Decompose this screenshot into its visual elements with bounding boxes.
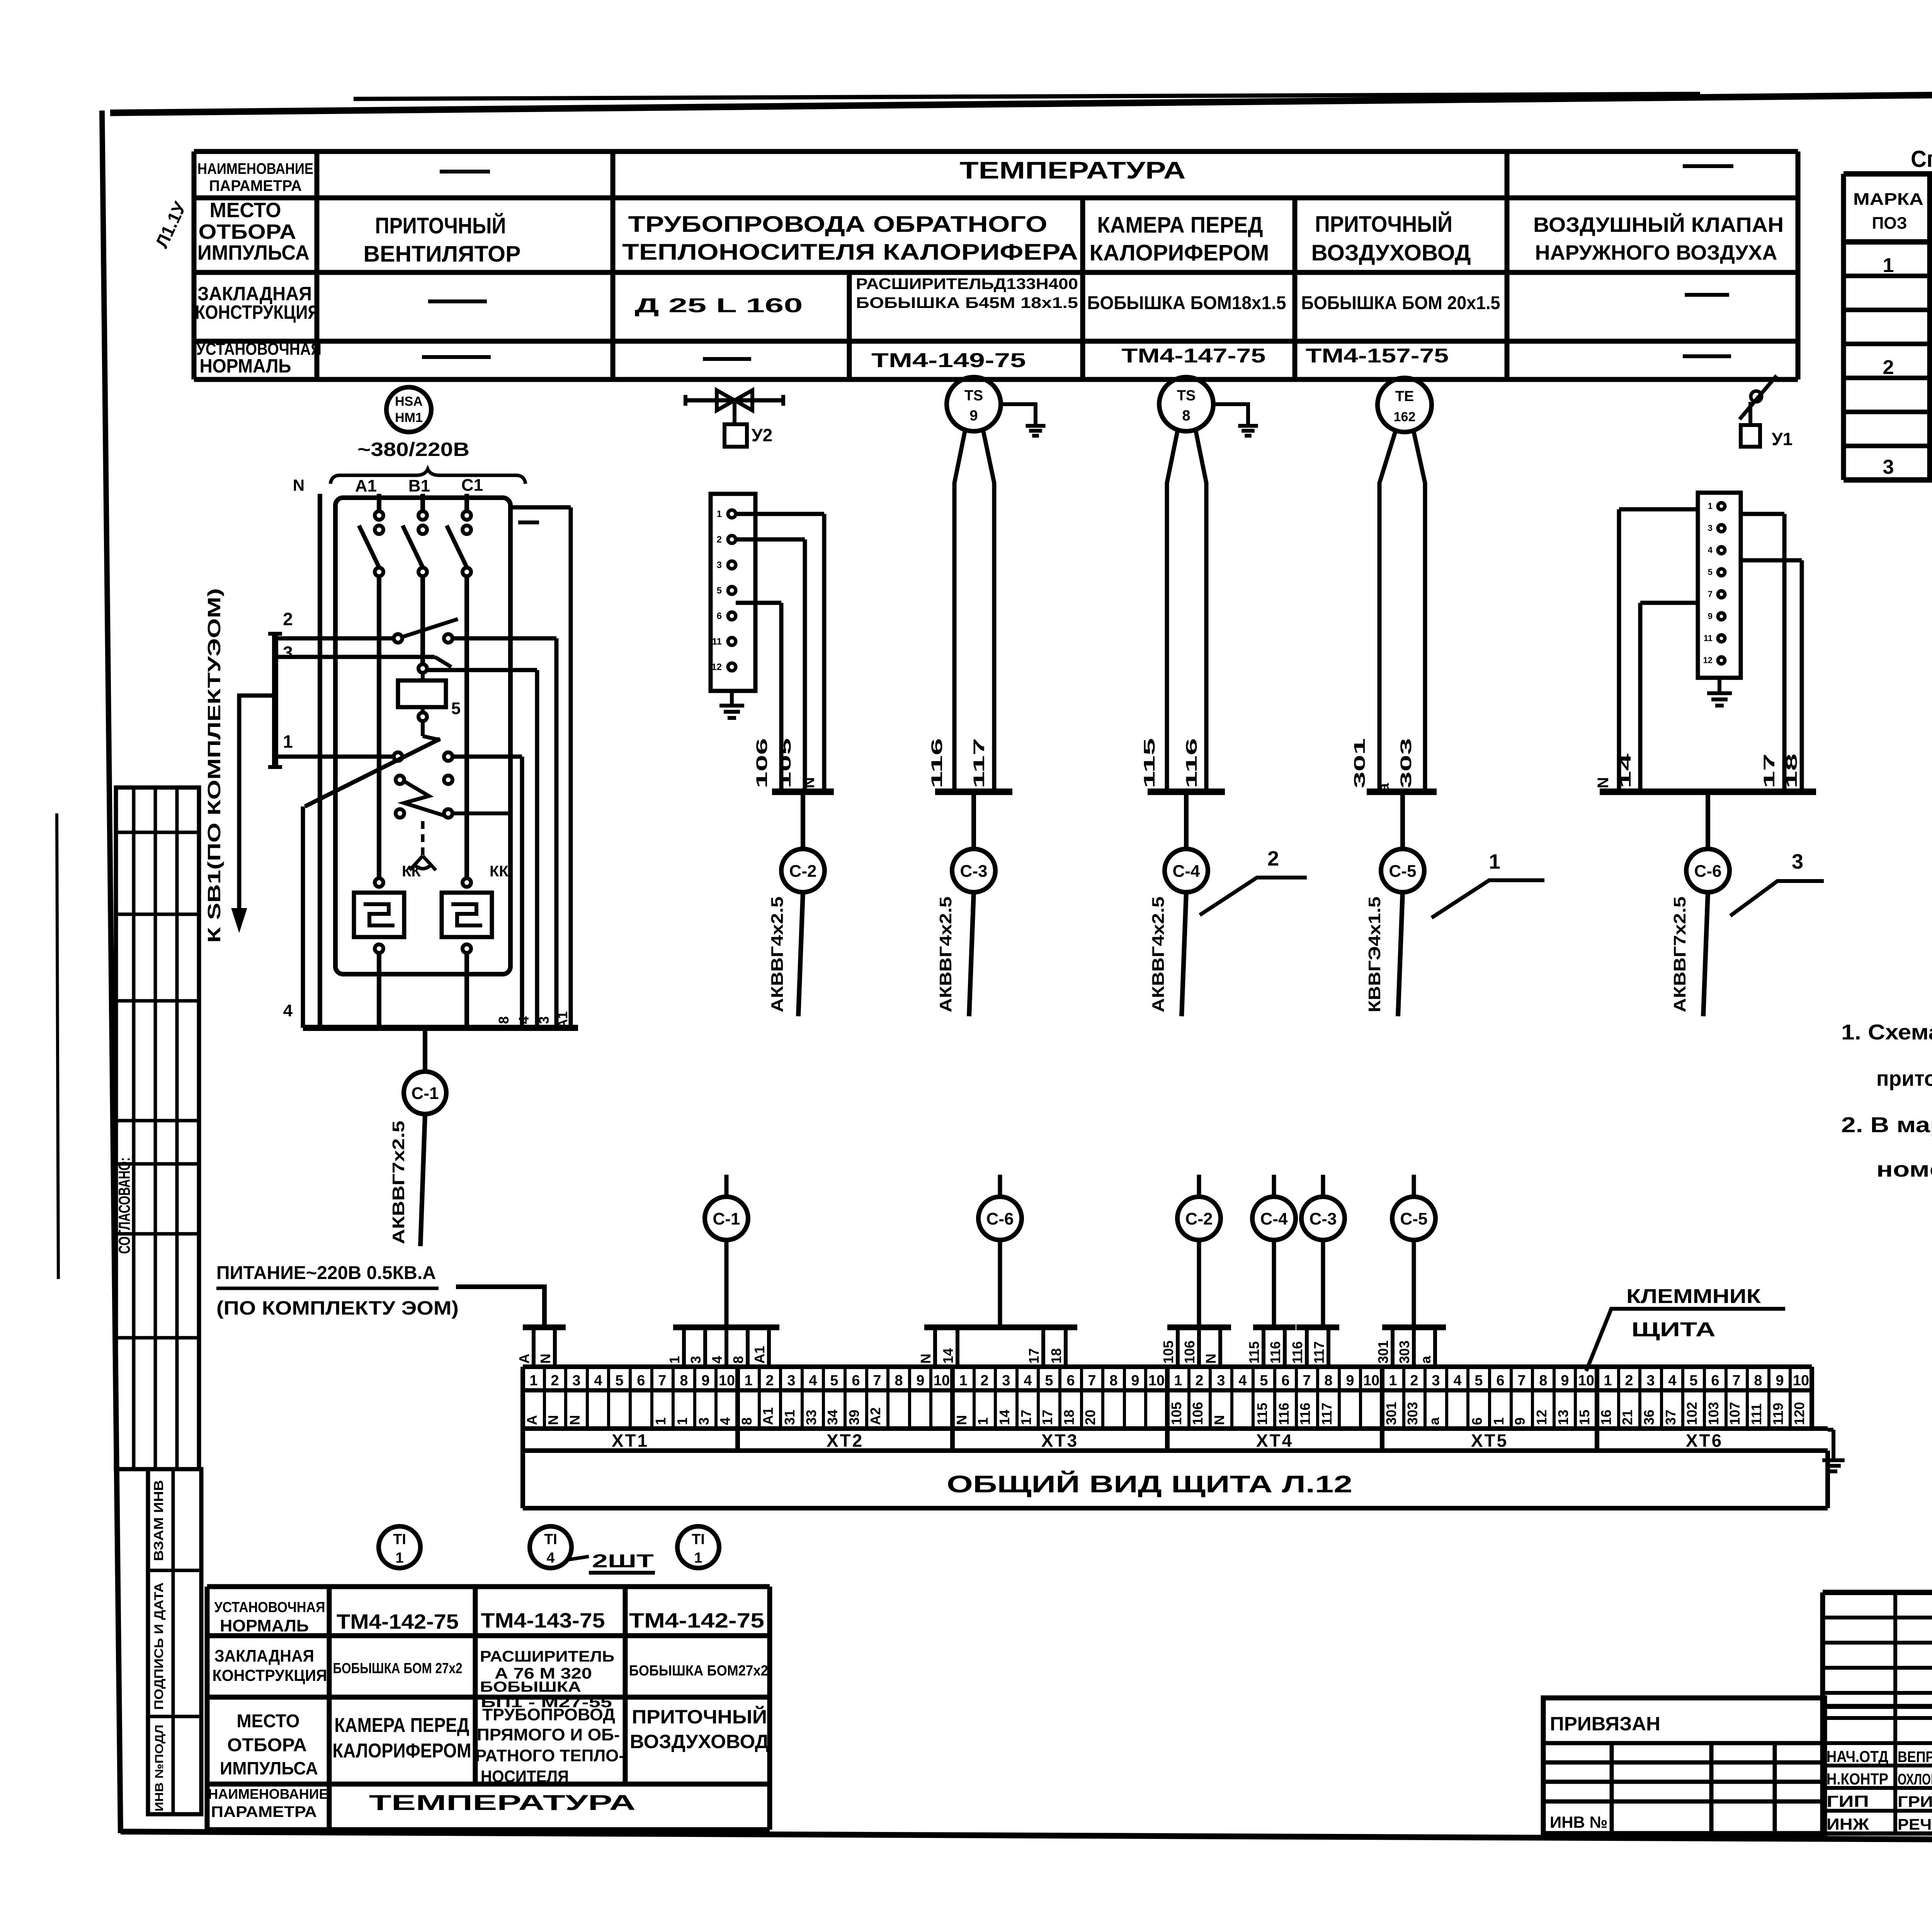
svg-text:ЗАКЛАДНАЯ: ЗАКЛАДНАЯ	[214, 1647, 314, 1665]
svg-text:С-2: С-2	[1185, 1209, 1213, 1228]
svg-text:РАТНОГО ТЕПЛО-: РАТНОГО ТЕПЛО-	[475, 1746, 624, 1765]
svg-text:1: 1	[744, 1373, 752, 1389]
svg-text:А: А	[516, 1354, 532, 1364]
svg-text:БОБЫШКА: БОБЫШКА	[480, 1679, 581, 1695]
svg-text:ПАРАМЕТРА: ПАРАМЕТРА	[211, 1803, 317, 1820]
svg-text:8: 8	[680, 1373, 688, 1389]
svg-text:ПРИТОЧНЫЙ: ПРИТОЧНЫЙ	[632, 1706, 767, 1728]
svg-text:18: 18	[1048, 1348, 1064, 1364]
svg-text:ПИТАНИЕ~220В 0.5КВ.А: ПИТАНИЕ~220В 0.5КВ.А	[216, 1263, 436, 1283]
svg-text:ТI: ТI	[393, 1531, 406, 1548]
svg-text:6: 6	[717, 611, 722, 621]
svg-text:8: 8	[1754, 1373, 1762, 1389]
svg-text:номер системы согласно таб: номер системы согласно табл.2	[1876, 1157, 1932, 1181]
svg-text:8: 8	[1182, 408, 1190, 424]
svg-text:НАРУЖНОГО ВОЗДУХА: НАРУЖНОГО ВОЗДУХА	[1535, 241, 1777, 264]
svg-text:116: 116	[1183, 738, 1200, 788]
svg-text:ТS: ТS	[1177, 388, 1196, 404]
svg-text:31: 31	[782, 1410, 798, 1425]
svg-text:ВЕНТИЛЯТОР: ВЕНТИЛЯТОР	[364, 242, 521, 267]
svg-text:2: 2	[1410, 1373, 1418, 1389]
svg-text:17: 17	[1761, 754, 1778, 788]
svg-text:РАСШИРИТЕЛЬ: РАСШИРИТЕЛЬ	[480, 1648, 614, 1665]
svg-text:1: 1	[395, 1550, 403, 1566]
svg-text:С-6: С-6	[986, 1209, 1014, 1228]
svg-text:1: 1	[667, 1356, 682, 1364]
svg-text:14: 14	[940, 1348, 956, 1364]
svg-text:ТМ4-149-75: ТМ4-149-75	[871, 349, 1026, 372]
svg-text:ПАРАМЕТРА: ПАРАМЕТРА	[209, 177, 302, 194]
svg-text:2: 2	[1267, 847, 1279, 870]
svg-text:С-3: С-3	[1310, 1209, 1337, 1228]
svg-text:НОРМАЛЬ: НОРМАЛЬ	[200, 355, 291, 377]
svg-text:У1: У1	[1772, 429, 1793, 449]
svg-text:приточной системы и применим: приточной системы и применима для систем…	[1876, 1066, 1932, 1090]
svg-text:1: 1	[1491, 1417, 1507, 1425]
svg-text:105: 105	[1168, 1402, 1184, 1425]
svg-text:ТМ4-143-75: ТМ4-143-75	[481, 1609, 605, 1632]
svg-text:АКВВГ7х2.5: АКВВГ7х2.5	[1670, 896, 1689, 1012]
svg-text:9: 9	[1131, 1373, 1139, 1389]
svg-text:12: 12	[711, 662, 722, 672]
svg-text:5: 5	[1689, 1373, 1697, 1389]
svg-text:18: 18	[1061, 1410, 1077, 1425]
svg-text:ОТБОРА: ОТБОРА	[199, 220, 296, 243]
svg-text:У2: У2	[752, 425, 772, 445]
svg-text:102: 102	[1684, 1402, 1700, 1425]
svg-text:17: 17	[1026, 1348, 1042, 1364]
svg-text:А: А	[524, 1415, 540, 1425]
svg-text:а: а	[1375, 783, 1392, 792]
svg-text:ХТ1: ХТ1	[612, 1431, 649, 1451]
svg-text:МЕСТО: МЕСТО	[210, 199, 281, 222]
svg-text:3: 3	[1883, 456, 1894, 478]
svg-text:N: N	[801, 777, 818, 788]
svg-text:6: 6	[1711, 1373, 1719, 1389]
svg-text:5: 5	[1708, 567, 1713, 577]
svg-text:НАИМЕНОВАНИЕ: НАИМЕНОВАНИЕ	[208, 1786, 328, 1802]
svg-text:А1: А1	[760, 1407, 776, 1425]
svg-text:(ПО КОМПЛЕКТУ ЭОМ): (ПО КОМПЛЕКТУ ЭОМ)	[216, 1297, 459, 1319]
svg-text:ЩИТА: ЩИТА	[1631, 1318, 1716, 1341]
svg-text:ОХЛОБЫСТИНА: ОХЛОБЫСТИНА	[1898, 1771, 1932, 1788]
svg-text:ХТ3: ХТ3	[1041, 1431, 1078, 1451]
svg-text:ВЕПРИНСКИЙ: ВЕПРИНСКИЙ	[1898, 1748, 1932, 1766]
svg-text:1: 1	[717, 509, 722, 519]
svg-text:БОБЫШКА Б45М 18х1.5: БОБЫШКА Б45М 18х1.5	[856, 294, 1078, 311]
svg-text:116: 116	[929, 738, 946, 788]
svg-text:а: а	[1426, 1417, 1442, 1425]
svg-text:5: 5	[1475, 1373, 1483, 1389]
svg-text:162: 162	[1394, 410, 1416, 424]
svg-text:ВОЗДУХОВОД: ВОЗДУХОВОД	[1311, 240, 1471, 265]
svg-text:А1: А1	[752, 1346, 767, 1364]
svg-text:1: 1	[694, 1550, 702, 1566]
svg-text:К SB1(ПО КОМПЛЕКТУЭОМ): К SB1(ПО КОМПЛЕКТУЭОМ)	[204, 588, 224, 943]
svg-text:N: N	[545, 1415, 561, 1425]
svg-text:7: 7	[658, 1373, 666, 1389]
svg-text:4: 4	[709, 1356, 725, 1364]
svg-text:С-3: С-3	[960, 862, 988, 881]
svg-text:34: 34	[825, 1410, 840, 1425]
svg-text:36: 36	[1641, 1410, 1657, 1425]
svg-text:1: 1	[529, 1373, 537, 1389]
svg-text:2: 2	[1195, 1373, 1203, 1389]
svg-text:КАМЕРА ПЕРЕД: КАМЕРА ПЕРЕД	[335, 1714, 469, 1737]
svg-text:3: 3	[1217, 1373, 1225, 1389]
svg-text:9: 9	[916, 1373, 924, 1389]
svg-text:НSА: НSА	[395, 394, 423, 409]
svg-text:АКВВГ4х2.5: АКВВГ4х2.5	[1149, 896, 1168, 1012]
svg-text:2: 2	[283, 609, 293, 629]
svg-text:4: 4	[283, 1001, 293, 1020]
svg-text:3: 3	[283, 643, 293, 663]
svg-text:116: 116	[1267, 1341, 1283, 1364]
svg-text:10: 10	[1363, 1373, 1379, 1389]
svg-text:С-1: С-1	[713, 1209, 740, 1228]
svg-text:8: 8	[1324, 1373, 1332, 1389]
svg-text:С-4: С-4	[1260, 1209, 1288, 1228]
svg-text:ХТ4: ХТ4	[1256, 1431, 1293, 1451]
svg-text:ПРИВЯЗАН: ПРИВЯЗАН	[1550, 1713, 1660, 1735]
svg-text:РАСШИРИТЕЛЬД133Н400: РАСШИРИТЕЛЬД133Н400	[856, 276, 1078, 293]
svg-text:ТМ4-142-75: ТМ4-142-75	[337, 1610, 459, 1633]
svg-text:N: N	[1211, 1415, 1227, 1425]
svg-text:9: 9	[1346, 1373, 1354, 1389]
svg-text:9: 9	[1561, 1373, 1569, 1389]
svg-text:14: 14	[1617, 753, 1634, 788]
svg-text:1: 1	[1883, 254, 1894, 277]
svg-text:БОБЫШКА БОМ27х2: БОБЫШКА БОМ27х2	[629, 1663, 768, 1679]
svg-text:303: 303	[1405, 1402, 1420, 1425]
svg-text:3: 3	[787, 1373, 795, 1389]
svg-text:107: 107	[1727, 1402, 1743, 1425]
svg-text:10: 10	[934, 1373, 950, 1389]
svg-text:А1: А1	[355, 476, 377, 495]
svg-text:НАИМЕНОВАНИЕ: НАИМЕНОВАНИЕ	[197, 160, 313, 177]
svg-text:3: 3	[1002, 1373, 1010, 1389]
svg-text:ИМПУЛЬСА: ИМПУЛЬСА	[197, 241, 310, 264]
svg-text:ИМПУЛЬСА: ИМПУЛЬСА	[220, 1758, 318, 1778]
svg-text:4: 4	[1708, 545, 1713, 555]
svg-text:ТS: ТS	[964, 388, 983, 404]
svg-text:НОСИТЕЛЯ: НОСИТЕЛЯ	[481, 1767, 569, 1786]
svg-text:БОБЫШКА БОМ18х1.5: БОБЫШКА БОМ18х1.5	[1087, 293, 1286, 313]
svg-text:1: 1	[1389, 1373, 1397, 1389]
svg-text:ПРИТОЧНЫЙ: ПРИТОЧНЫЙ	[375, 213, 506, 238]
svg-text:1: 1	[653, 1417, 668, 1425]
svg-text:106: 106	[753, 738, 770, 788]
svg-text:НМ1: НМ1	[395, 410, 423, 425]
svg-text:1: 1	[1708, 501, 1713, 511]
svg-text:8: 8	[1109, 1373, 1117, 1389]
svg-text:3: 3	[688, 1356, 704, 1364]
svg-text:ТРУБОПРОВОДА ОБРАТНОГО: ТРУБОПРОВОДА ОБРАТНОГО	[628, 212, 1048, 237]
svg-text:В1: В1	[408, 476, 430, 495]
svg-text:8: 8	[1539, 1373, 1547, 1389]
svg-text:1: 1	[1604, 1373, 1612, 1389]
svg-text:ТМ4-147-75: ТМ4-147-75	[1122, 345, 1266, 367]
svg-text:N: N	[918, 1354, 934, 1364]
svg-text:КОНСТРУКЦИЯ: КОНСТРУКЦИЯ	[195, 301, 320, 323]
svg-text:БОБЫШКА БОМ 20х1.5: БОБЫШКА БОМ 20х1.5	[1301, 293, 1500, 313]
svg-text:МАРКА: МАРКА	[1853, 190, 1923, 209]
svg-text:8: 8	[496, 1016, 512, 1024]
svg-text:4: 4	[1024, 1373, 1032, 1389]
svg-text:N: N	[567, 1415, 583, 1425]
svg-text:7: 7	[1517, 1373, 1526, 1389]
svg-text:20: 20	[1082, 1410, 1098, 1425]
svg-text:5: 5	[451, 699, 461, 718]
svg-text:6: 6	[637, 1373, 645, 1389]
svg-text:8: 8	[730, 1356, 746, 1364]
svg-text:5: 5	[717, 585, 722, 596]
svg-text:9: 9	[969, 408, 978, 424]
svg-text:КК: КК	[490, 863, 509, 880]
svg-text:АКВВГ7х2.5: АКВВГ7х2.5	[389, 1121, 408, 1244]
svg-text:116: 116	[1276, 1403, 1292, 1425]
svg-text:303: 303	[1396, 1340, 1412, 1364]
svg-text:7: 7	[1088, 1373, 1096, 1389]
svg-text:ПОЗ: ПОЗ	[1872, 214, 1907, 233]
svg-text:Спецификация элементов систе: Спецификация элементов систем П1,П2, П9	[1911, 146, 1932, 172]
svg-text:5: 5	[1260, 1373, 1268, 1389]
svg-text:6: 6	[1281, 1373, 1289, 1389]
svg-text:6: 6	[1066, 1373, 1075, 1389]
svg-text:3: 3	[1646, 1373, 1655, 1389]
svg-text:С-5: С-5	[1400, 1209, 1428, 1228]
svg-text:39: 39	[846, 1410, 862, 1425]
svg-text:А2: А2	[867, 1407, 883, 1425]
svg-text:17: 17	[1039, 1410, 1055, 1425]
svg-text:НОРМАЛЬ: НОРМАЛЬ	[220, 1616, 309, 1635]
svg-text:ТI: ТI	[692, 1531, 705, 1548]
svg-text:3: 3	[572, 1373, 580, 1389]
svg-text:ТЕМПЕРАТУРА: ТЕМПЕРАТУРА	[369, 1790, 636, 1815]
svg-text:9: 9	[1708, 611, 1713, 621]
svg-text:6: 6	[852, 1373, 860, 1389]
svg-text:105: 105	[1160, 1340, 1176, 1364]
svg-text:15: 15	[1577, 1410, 1592, 1425]
svg-text:111: 111	[1748, 1403, 1764, 1425]
svg-text:2: 2	[1883, 356, 1894, 379]
svg-text:ТЕМПЕРАТУРА: ТЕМПЕРАТУРА	[960, 157, 1186, 184]
svg-text:3: 3	[1708, 523, 1713, 533]
svg-text:5: 5	[830, 1373, 838, 1389]
svg-text:303: 303	[1398, 738, 1415, 788]
svg-text:117: 117	[971, 738, 988, 788]
svg-text:ИНЖ: ИНЖ	[1827, 1815, 1869, 1833]
svg-text:119: 119	[1770, 1403, 1786, 1425]
svg-text:ХТ6: ХТ6	[1686, 1431, 1723, 1451]
svg-text:ПОДПИСЬ И ДАТА: ПОДПИСЬ И ДАТА	[152, 1582, 166, 1710]
svg-text:7: 7	[1303, 1373, 1311, 1389]
svg-text:РЕЧИЦКАЯ: РЕЧИЦКАЯ	[1898, 1816, 1932, 1833]
svg-text:4: 4	[546, 1550, 554, 1566]
svg-text:4: 4	[594, 1373, 602, 1389]
svg-text:6: 6	[1469, 1417, 1485, 1425]
svg-text:115: 115	[1254, 1403, 1270, 1425]
svg-text:НАЧ.ОТД: НАЧ.ОТД	[1827, 1747, 1888, 1766]
svg-text:КАМЕРА ПЕРЕД: КАМЕРА ПЕРЕД	[1097, 213, 1263, 238]
svg-text:9: 9	[701, 1373, 709, 1389]
svg-text:4: 4	[809, 1373, 817, 1389]
svg-text:Д 25 L 160: Д 25 L 160	[635, 294, 803, 317]
svg-text:37: 37	[1663, 1410, 1679, 1425]
svg-text:1: 1	[283, 731, 293, 752]
svg-text:ВОЗДУШНЫЙ КЛАПАН: ВОЗДУШНЫЙ КЛАПАН	[1533, 213, 1784, 236]
svg-text:5: 5	[1045, 1373, 1053, 1389]
svg-text:14: 14	[997, 1410, 1012, 1425]
svg-text:С1: С1	[461, 476, 483, 495]
svg-text:АКВВГ4х2.5: АКВВГ4х2.5	[768, 896, 787, 1012]
svg-text:10: 10	[719, 1373, 735, 1389]
svg-text:ПРЯМОГО И ОБ-: ПРЯМОГО И ОБ-	[477, 1725, 620, 1744]
svg-text:115: 115	[1246, 1341, 1262, 1364]
svg-text:ТЕ: ТЕ	[1395, 388, 1414, 405]
svg-text:2: 2	[717, 534, 722, 545]
svg-text:АКВВГ4х2.5: АКВВГ4х2.5	[936, 896, 955, 1012]
svg-text:3: 3	[696, 1417, 712, 1425]
svg-text:ХТ5: ХТ5	[1471, 1431, 1508, 1451]
svg-text:10: 10	[1578, 1373, 1594, 1389]
svg-text:а: а	[1418, 1356, 1434, 1364]
svg-text:ВЗАМ ИНВ: ВЗАМ ИНВ	[151, 1480, 166, 1561]
svg-text:ПРИТОЧНЫЙ: ПРИТОЧНЫЙ	[1315, 212, 1452, 237]
svg-text:ТМ4-142-75: ТМ4-142-75	[629, 1609, 764, 1632]
svg-text:КК: КК	[402, 863, 421, 880]
svg-text:10: 10	[1793, 1373, 1809, 1389]
svg-text:106: 106	[1182, 1340, 1197, 1364]
svg-text:ТI: ТI	[544, 1531, 557, 1548]
svg-text:МЕСТО: МЕСТО	[237, 1711, 300, 1732]
svg-text:2: 2	[1625, 1373, 1633, 1389]
svg-text:301: 301	[1375, 1340, 1391, 1364]
svg-text:С-6: С-6	[1694, 862, 1722, 881]
svg-text:ТЕПЛОНОСИТЕЛЯ КАЛОРИФЕРА: ТЕПЛОНОСИТЕЛЯ КАЛОРИФЕРА	[622, 240, 1078, 265]
svg-text:2. В маркировке кабелей вмес: 2. В маркировке кабелей вместо индекса„С…	[1841, 1112, 1932, 1137]
svg-text:4: 4	[717, 1417, 733, 1425]
svg-text:ТРУБОПРОВОД: ТРУБОПРОВОД	[482, 1705, 615, 1724]
svg-text:КАЛОРИФЕРОМ: КАЛОРИФЕРОМ	[333, 1740, 471, 1762]
svg-text:117: 117	[1319, 1403, 1335, 1425]
svg-text:7: 7	[873, 1373, 881, 1389]
svg-text:ТМ4-157-75: ТМ4-157-75	[1306, 345, 1449, 367]
svg-text:9: 9	[1512, 1417, 1528, 1425]
svg-text:1: 1	[674, 1417, 690, 1425]
svg-text:N: N	[1595, 777, 1612, 788]
svg-text:4: 4	[516, 1016, 532, 1024]
svg-text:ОБЩИЙ ВИД ЩИТА Л.12: ОБЩИЙ ВИД ЩИТА Л.12	[947, 1471, 1352, 1498]
svg-text:БОБЫШКА БОМ 27х2: БОБЫШКА БОМ 27х2	[333, 1660, 463, 1677]
svg-text:116: 116	[1297, 1403, 1313, 1425]
svg-text:С-2: С-2	[789, 862, 817, 881]
svg-text:1. Схема соединений внешних: 1. Схема соединений внешних проводок сос…	[1841, 1020, 1932, 1044]
svg-text:2ШТ: 2ШТ	[592, 1551, 654, 1572]
svg-text:11: 11	[712, 636, 722, 647]
svg-text:7: 7	[1732, 1373, 1740, 1389]
svg-text:N: N	[293, 476, 304, 494]
svg-text:ХТ2: ХТ2	[827, 1431, 864, 1451]
svg-text:СОГЛАСОВАНО:: СОГЛАСОВАНО:	[115, 1157, 133, 1254]
svg-text:2: 2	[765, 1373, 774, 1389]
svg-text:103: 103	[1706, 1402, 1721, 1425]
svg-text:УСТАНОВОЧНАЯ: УСТАНОВОЧНАЯ	[214, 1599, 325, 1616]
svg-text:ОТБОРА: ОТБОРА	[227, 1735, 307, 1755]
svg-text:1: 1	[959, 1373, 967, 1389]
svg-text:КЛЕММНИК: КЛЕММНИК	[1626, 1285, 1761, 1308]
svg-text:120: 120	[1791, 1402, 1807, 1425]
svg-text:4: 4	[1238, 1373, 1247, 1389]
svg-text:6: 6	[1496, 1373, 1504, 1389]
svg-text:КОНСТРУКЦИЯ: КОНСТРУКЦИЯ	[213, 1666, 327, 1684]
svg-text:4: 4	[1453, 1373, 1461, 1389]
svg-text:КВВГЭ4х1.5: КВВГЭ4х1.5	[1365, 896, 1384, 1012]
svg-text:ГРИНГАУЗ: ГРИНГАУЗ	[1898, 1793, 1932, 1810]
svg-text:115: 115	[1141, 738, 1158, 788]
svg-text:3: 3	[717, 560, 722, 570]
svg-text:1: 1	[1489, 850, 1500, 873]
svg-text:2: 2	[980, 1373, 988, 1389]
svg-text:~380/220В: ~380/220В	[357, 439, 469, 460]
svg-text:9: 9	[1776, 1373, 1784, 1389]
svg-text:16: 16	[1598, 1410, 1614, 1425]
svg-text:КАЛОРИФЕРОМ: КАЛОРИФЕРОМ	[1090, 240, 1269, 265]
svg-text:33: 33	[803, 1410, 819, 1425]
svg-text:N: N	[954, 1415, 969, 1425]
svg-text:С-5: С-5	[1389, 862, 1417, 881]
svg-text:10: 10	[1148, 1373, 1165, 1389]
svg-text:3: 3	[1432, 1373, 1440, 1389]
svg-text:17: 17	[1018, 1410, 1034, 1425]
svg-text:С-4: С-4	[1173, 862, 1200, 881]
svg-text:3: 3	[536, 1016, 552, 1024]
svg-text:105: 105	[777, 738, 794, 788]
svg-text:116: 116	[1289, 1341, 1305, 1364]
svg-text:301: 301	[1351, 738, 1368, 788]
svg-text:106: 106	[1190, 1402, 1206, 1425]
svg-text:18: 18	[1783, 754, 1800, 788]
svg-text:ИНВ №ПОДЛ: ИНВ №ПОДЛ	[153, 1725, 166, 1812]
svg-text:N: N	[1203, 1354, 1219, 1364]
svg-text:13: 13	[1555, 1410, 1571, 1425]
svg-text:С-1: С-1	[412, 1084, 439, 1103]
svg-text:3: 3	[1792, 850, 1803, 873]
svg-text:ГИП: ГИП	[1827, 1792, 1869, 1810]
svg-text:5: 5	[615, 1373, 623, 1389]
svg-text:12: 12	[1703, 655, 1713, 665]
svg-text:Н.КОНТР: Н.КОНТР	[1827, 1770, 1888, 1788]
svg-text:2: 2	[551, 1373, 559, 1389]
svg-text:301: 301	[1383, 1402, 1399, 1425]
svg-text:ИНВ №: ИНВ №	[1550, 1813, 1607, 1831]
svg-text:11: 11	[1704, 633, 1713, 643]
svg-text:1: 1	[975, 1417, 991, 1425]
svg-text:1: 1	[1174, 1373, 1182, 1389]
svg-text:ВОЗДУХОВОД: ВОЗДУХОВОД	[630, 1731, 769, 1752]
svg-text:7: 7	[1708, 589, 1713, 599]
svg-text:117: 117	[1311, 1341, 1327, 1364]
svg-text:8: 8	[739, 1417, 755, 1425]
svg-text:21: 21	[1619, 1410, 1635, 1425]
svg-text:4: 4	[1668, 1373, 1676, 1389]
svg-text:8: 8	[895, 1373, 903, 1389]
svg-text:N: N	[537, 1354, 553, 1364]
svg-text:12: 12	[1534, 1410, 1549, 1425]
